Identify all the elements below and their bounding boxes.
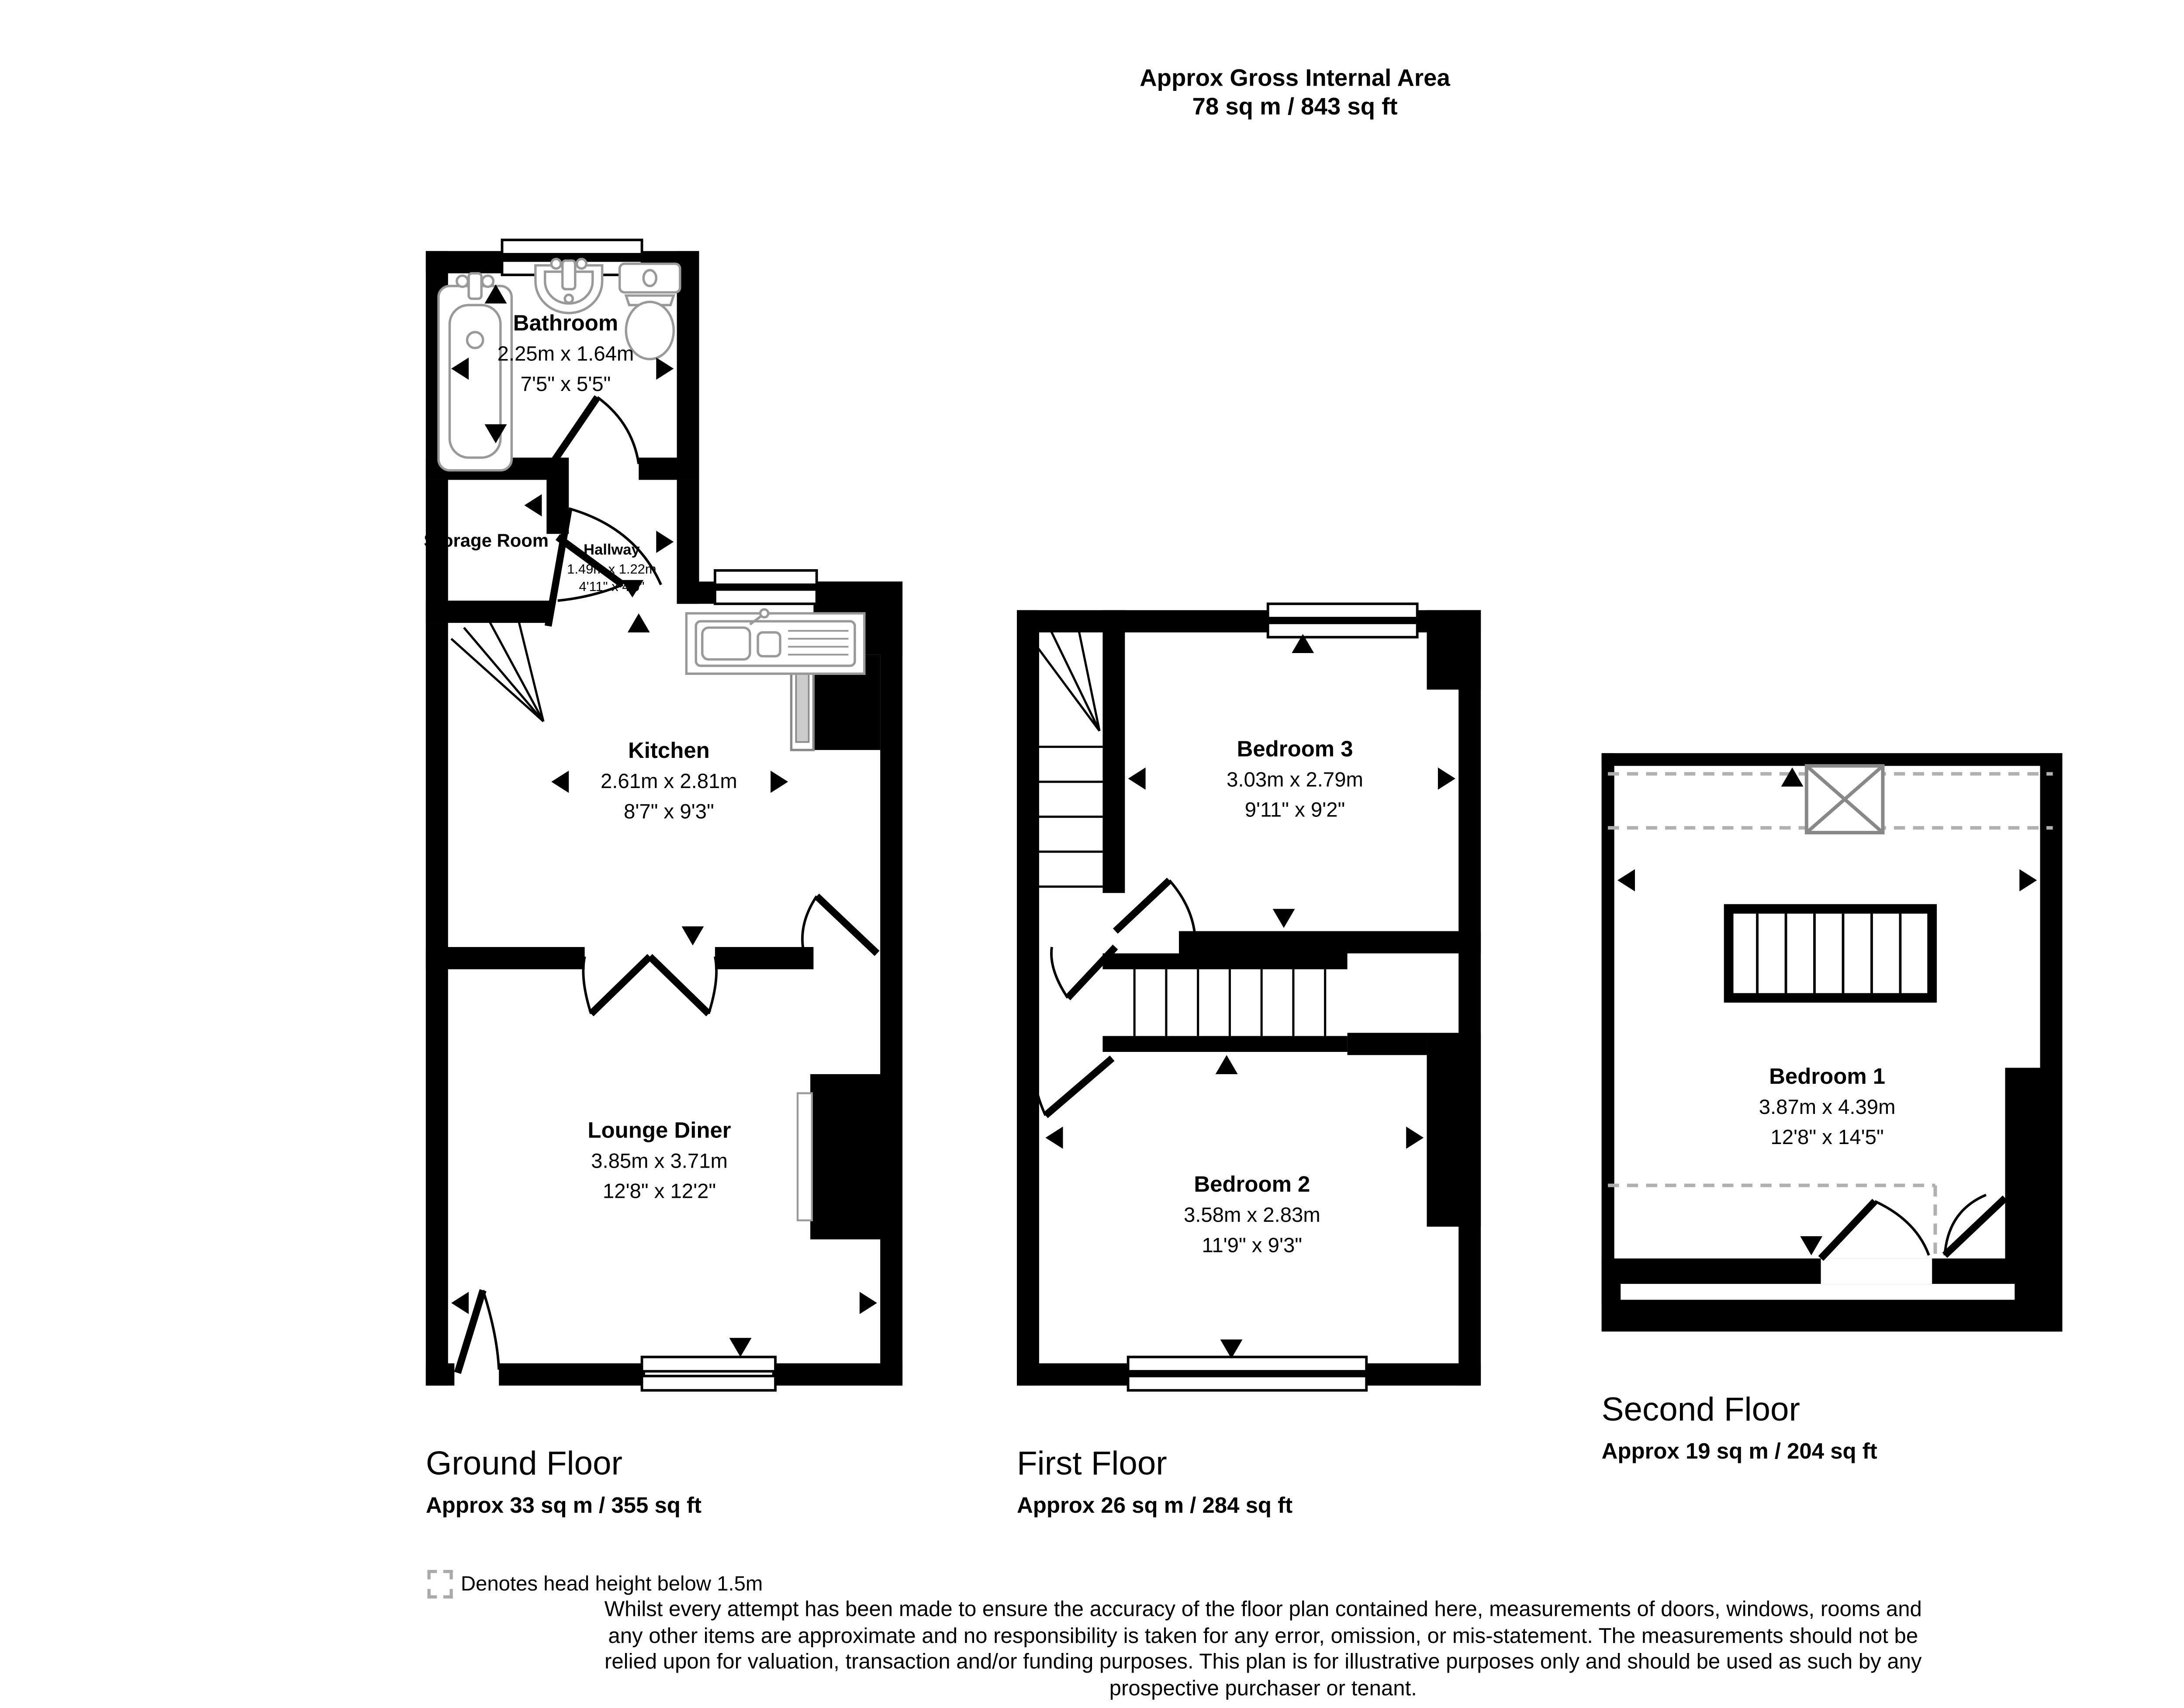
first-floor-walls — [1017, 610, 1481, 1386]
room-label-kitchen: Kitchen 2.61m x 2.81m 8'7" x 9'3" — [494, 734, 843, 826]
room-size-imperial: 12'8" x 14'5" — [1652, 1122, 2002, 1152]
total-area: 78 sq m / 843 sq ft — [1057, 94, 1533, 122]
room-size-metric: 3.87m x 4.39m — [1652, 1092, 2002, 1122]
ground-floor-label: Ground Floor — [426, 1446, 622, 1484]
page-header: Approx Gross Internal Area 78 sq m / 843… — [1057, 65, 1533, 122]
head-height-lines — [1608, 774, 2053, 1258]
first-floor-stair-run — [1134, 969, 1325, 1036]
room-name: Storage Room — [423, 531, 550, 555]
ground-floor-area: Approx 33 sq m / 355 sq ft — [426, 1492, 702, 1518]
room-size-imperial: 12'8" x 12'2" — [484, 1176, 834, 1206]
second-floor-dimension-arrows — [1617, 768, 2037, 1255]
floorplan-canvas: N S E W Approx Gross Internal Area 78 sq… — [0, 0, 2184, 1708]
head-height-legend-icon — [427, 1570, 453, 1598]
basin-icon — [536, 259, 602, 313]
room-name: Bedroom 2 — [1077, 1168, 1427, 1200]
room-size-imperial: 9'11" x 9'2" — [1120, 795, 1469, 825]
ground-floor-stairs — [451, 618, 543, 721]
first-floor-doors — [1034, 880, 1195, 1115]
kitchen-sink-icon — [686, 609, 864, 674]
second-floor-label: Second Floor — [1602, 1392, 1800, 1430]
room-label-bedroom-3: Bedroom 3 3.03m x 2.79m 9'11" x 9'2" — [1120, 733, 1469, 825]
first-floor-windows — [1128, 604, 1417, 1390]
floorplan-page: N S E W Approx Gross Internal Area 78 sq… — [0, 0, 2184, 1708]
room-label-bedroom-2: Bedroom 2 3.58m x 2.83m 11'9" x 9'3" — [1077, 1168, 1427, 1260]
second-floor-plan — [1602, 753, 2063, 1331]
room-name: Bedroom 1 — [1652, 1060, 2002, 1092]
room-size-metric: 2.25m x 1.64m — [391, 339, 740, 369]
disclaimer: Whilst every attempt has been made to en… — [508, 1597, 2018, 1702]
room-label-storage: Storage Room — [423, 531, 550, 555]
first-floor-area: Approx 26 sq m / 284 sq ft — [1017, 1492, 1292, 1518]
first-floor-plan — [1017, 604, 1481, 1390]
room-size-metric: 3.85m x 3.71m — [484, 1146, 834, 1176]
room-name: Bedroom 3 — [1120, 733, 1469, 764]
disclaimer-line: prospective purchaser or tenant. — [508, 1676, 2018, 1702]
room-size-metric: 1.49m x 1.22m — [532, 561, 691, 578]
page-title: Approx Gross Internal Area — [1057, 65, 1533, 93]
disclaimer-line: relied upon for valuation, transaction a… — [508, 1649, 2018, 1676]
room-label-bedroom-1: Bedroom 1 3.87m x 4.39m 12'8" x 14'5" — [1652, 1060, 2002, 1152]
room-name: Hallway — [532, 542, 691, 561]
second-floor-stair-run — [1729, 909, 1932, 998]
skylight-icon — [1807, 766, 1883, 833]
room-size-imperial: 7'5" x 5'5" — [391, 369, 740, 399]
room-label-lounge-diner: Lounge Diner 3.85m x 3.71m 12'8" x 12'2" — [484, 1114, 834, 1206]
second-floor-area: Approx 19 sq m / 204 sq ft — [1602, 1438, 1877, 1463]
room-name: Lounge Diner — [484, 1114, 834, 1146]
head-height-legend-text: Denotes head height below 1.5m — [461, 1571, 763, 1595]
second-floor-doors — [1821, 1195, 2005, 1259]
disclaimer-line: any other items are approximate and no r… — [508, 1623, 2018, 1649]
room-size-imperial: 11'9" x 9'3" — [1077, 1230, 1427, 1260]
disclaimer-line: Whilst every attempt has been made to en… — [508, 1597, 2018, 1623]
room-name: Bathroom — [391, 307, 740, 339]
room-size-metric: 3.58m x 2.83m — [1077, 1200, 1427, 1230]
room-size-metric: 2.61m x 2.81m — [494, 766, 843, 796]
room-name: Kitchen — [494, 734, 843, 766]
room-label-bathroom: Bathroom 2.25m x 1.64m 7'5" x 5'5" — [391, 307, 740, 399]
room-label-hallway: Hallway 1.49m x 1.22m 4'11" x 4'0" — [532, 542, 691, 596]
first-floor-label: First Floor — [1017, 1446, 1167, 1484]
room-size-imperial: 4'11" x 4'0" — [532, 578, 691, 596]
room-size-metric: 3.03m x 2.79m — [1120, 764, 1469, 795]
room-size-imperial: 8'7" x 9'3" — [494, 796, 843, 826]
